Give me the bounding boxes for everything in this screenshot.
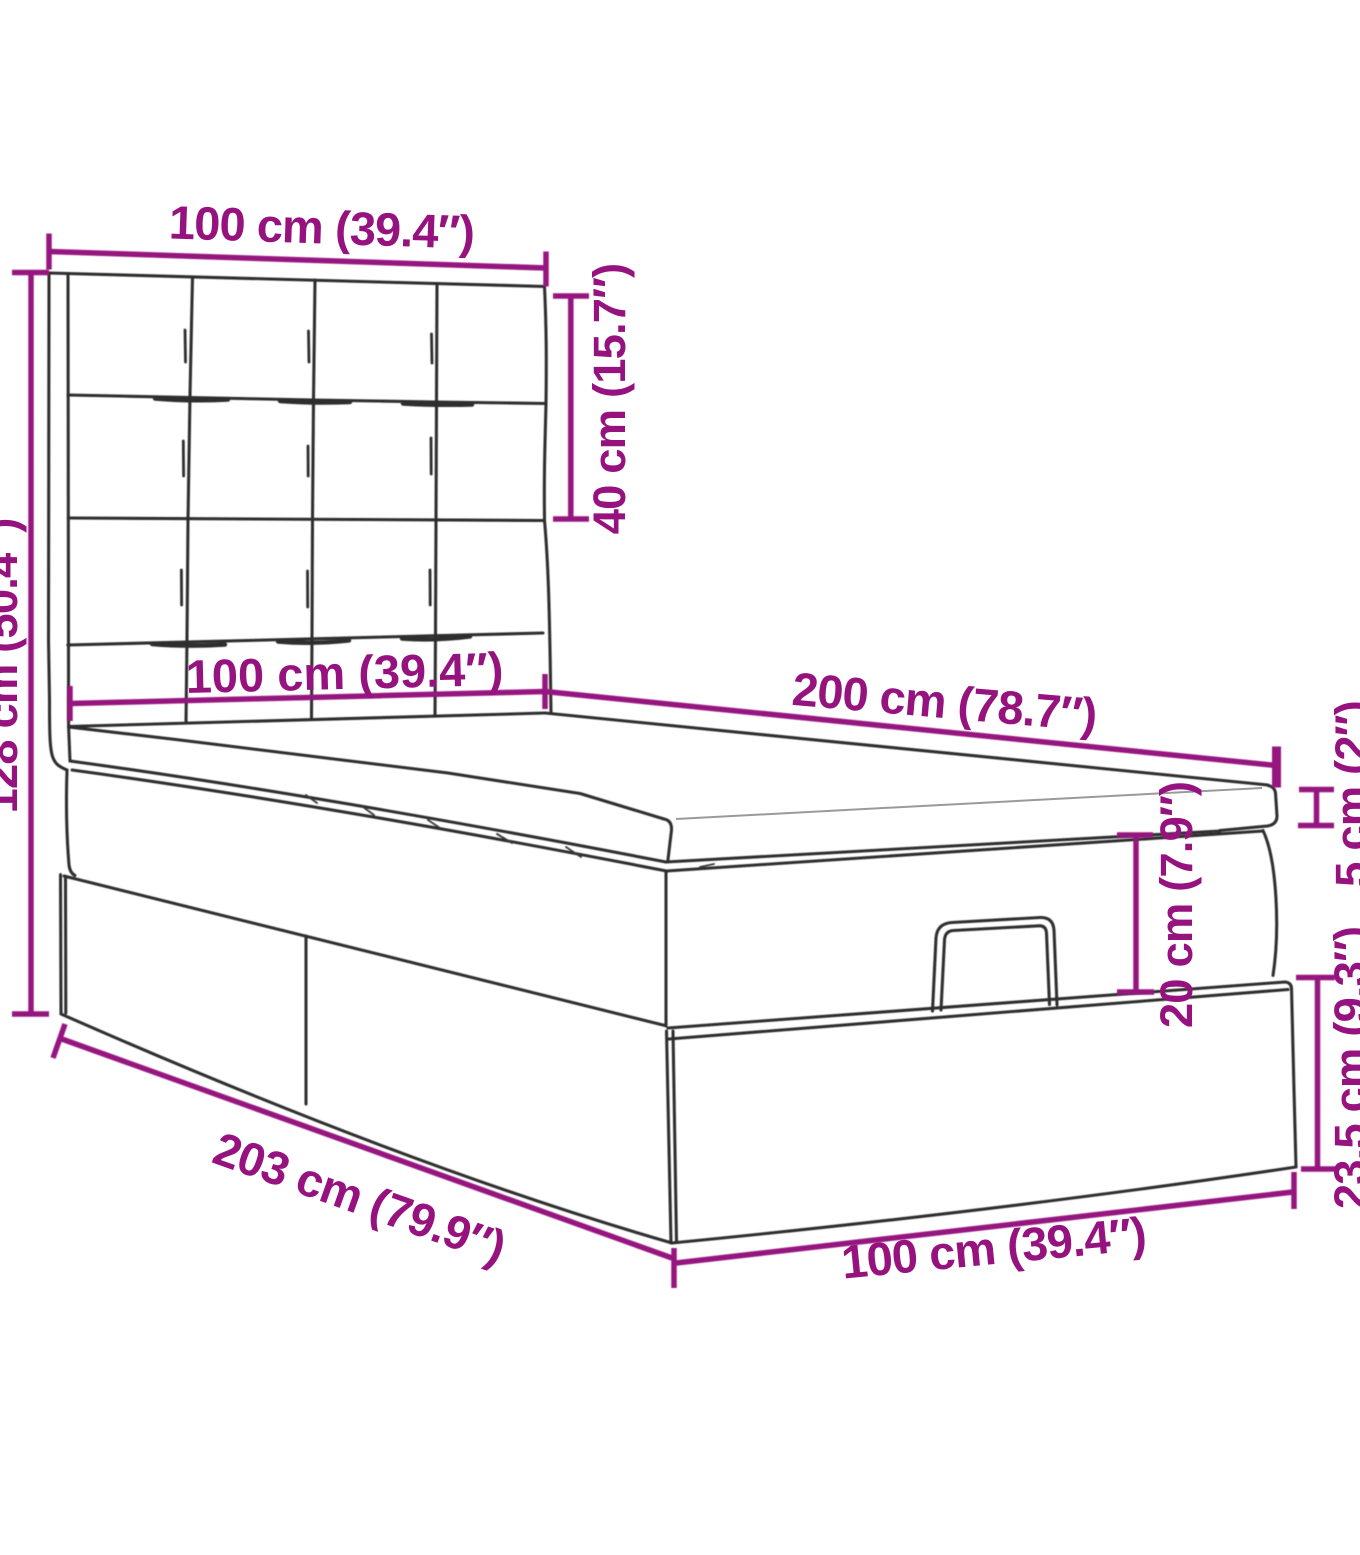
svg-text:5 cm (2″): 5 cm (2″): [1326, 701, 1360, 887]
svg-text:100 cm (39.4″): 100 cm (39.4″): [185, 642, 504, 703]
svg-text:23.5 cm (9.3″): 23.5 cm (9.3″): [1325, 927, 1360, 1209]
svg-text:128 cm (50.4″): 128 cm (50.4″): [0, 518, 27, 813]
svg-text:40 cm (15.7″): 40 cm (15.7″): [584, 264, 635, 535]
svg-text:20 cm (7.9″): 20 cm (7.9″): [1151, 782, 1202, 1028]
svg-text:100 cm (39.4″): 100 cm (39.4″): [168, 195, 475, 258]
